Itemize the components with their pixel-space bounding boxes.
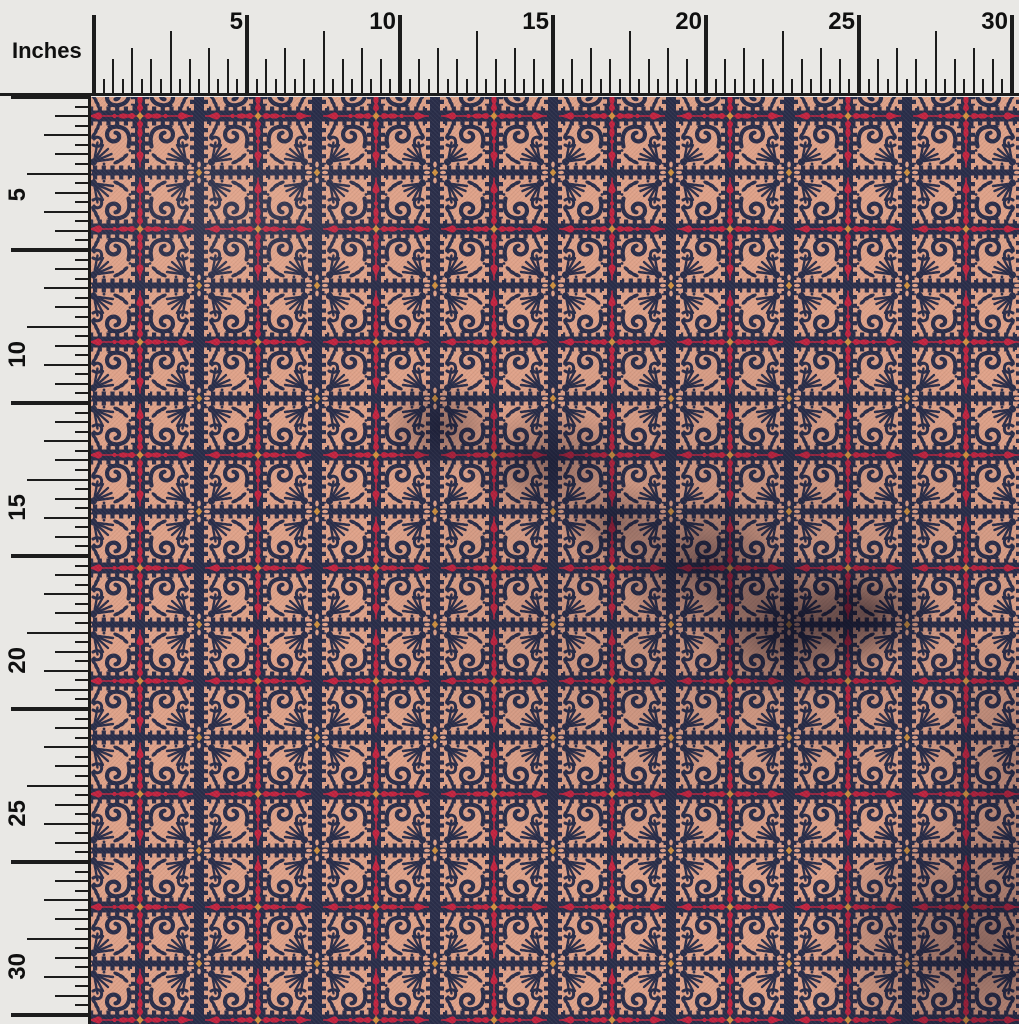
ruler-tick xyxy=(75,392,91,394)
ruler-tick xyxy=(857,15,861,95)
ruler-tick xyxy=(75,163,91,165)
ruler-tick xyxy=(294,79,296,95)
left-ruler-label-30: 30 xyxy=(5,953,31,1013)
ruler-tick xyxy=(27,173,91,175)
ruler-tick xyxy=(619,79,621,95)
ruler-tick xyxy=(75,526,91,528)
ruler-tick xyxy=(1010,15,1014,95)
ruler-tick xyxy=(122,79,124,95)
ruler-tick xyxy=(44,670,91,672)
top-ruler-label-20: 20 xyxy=(632,8,702,36)
ruler-tick xyxy=(44,440,91,442)
ruler-tick xyxy=(75,603,91,605)
ruler-tick xyxy=(791,79,793,95)
ruler-tick xyxy=(44,134,91,136)
ruler-tick xyxy=(380,59,382,95)
ruler-tick xyxy=(55,727,91,729)
ruler-tick xyxy=(973,48,975,95)
ruler-tick xyxy=(676,79,678,95)
ruler-tick xyxy=(75,259,91,261)
ruler-tick xyxy=(896,48,898,95)
ruler-tick xyxy=(44,899,91,901)
ruler-tick xyxy=(935,31,937,95)
ruler-tick xyxy=(657,79,659,95)
ruler-tick xyxy=(609,59,611,95)
ruler-tick xyxy=(820,48,822,95)
ruler-tick xyxy=(629,31,631,95)
fabric-pattern-svg xyxy=(91,97,1019,1024)
ruler-tick xyxy=(236,79,238,95)
ruler-tick xyxy=(245,15,249,95)
ruler-tick xyxy=(915,59,917,95)
ruler-tick xyxy=(75,890,91,892)
ruler-tick xyxy=(112,59,114,95)
ruler-tick xyxy=(44,364,91,366)
ruler-tick xyxy=(75,201,91,203)
ruler-tick xyxy=(75,756,91,758)
ruler-tick xyxy=(75,125,91,127)
ruler-tick xyxy=(27,479,91,481)
ruler-tick xyxy=(648,59,650,95)
ruler-tick xyxy=(667,48,669,95)
ruler-tick xyxy=(600,79,602,95)
ruler-tick xyxy=(75,220,91,222)
ruler-tick xyxy=(562,79,564,95)
ruler-tick xyxy=(75,182,91,184)
ruler-tick xyxy=(389,79,391,95)
ruler-tick xyxy=(75,507,91,509)
left-ruler-baseline xyxy=(88,93,91,1024)
ruler-tick xyxy=(55,498,91,500)
ruler-tick xyxy=(55,459,91,461)
ruler-tick xyxy=(686,59,688,95)
ruler-tick xyxy=(44,823,91,825)
ruler-tick xyxy=(753,79,755,95)
ruler-tick xyxy=(44,976,91,978)
ruler-tick xyxy=(55,765,91,767)
ruler-tick xyxy=(275,79,277,95)
ruler-tick xyxy=(75,947,91,949)
fabric-swatch xyxy=(91,97,1019,1024)
ruler-tick xyxy=(75,737,91,739)
ruler-tick xyxy=(1001,79,1003,95)
ruler-tick xyxy=(456,59,458,95)
ruler-tick xyxy=(55,230,91,232)
ruler-tick xyxy=(704,15,708,95)
ruler-tick xyxy=(418,59,420,95)
ruler-tick xyxy=(75,718,91,720)
ruler-tick xyxy=(75,469,91,471)
ruler-tick xyxy=(533,59,535,95)
ruler-tick xyxy=(11,707,91,711)
ruler-tick xyxy=(11,1013,91,1017)
ruler-tick xyxy=(44,517,91,519)
ruler-tick xyxy=(523,79,525,95)
ruler-tick xyxy=(495,59,497,95)
ruler-tick xyxy=(131,48,133,95)
ruler-tick xyxy=(75,335,91,337)
ruler-tick xyxy=(925,79,927,95)
ruler-tick xyxy=(27,938,91,940)
ruler-tick xyxy=(11,554,91,558)
ruler-tick xyxy=(55,995,91,997)
left-ruler-label-5: 5 xyxy=(5,188,31,248)
ruler-tick xyxy=(504,79,506,95)
ruler-tick xyxy=(55,804,91,806)
left-ruler-label-15: 15 xyxy=(5,494,31,554)
top-ruler-label-30: 30 xyxy=(938,8,1008,36)
ruler-tick xyxy=(75,622,91,624)
ruler-tick xyxy=(303,59,305,95)
ruler-tick xyxy=(217,79,219,95)
ruler-tick xyxy=(27,785,91,787)
ruler-tick xyxy=(75,239,91,241)
ruler-tick xyxy=(170,31,172,95)
ruler-tick xyxy=(351,79,353,95)
ruler-tick xyxy=(55,957,91,959)
ruler-tick xyxy=(75,354,91,356)
ruler-tick xyxy=(75,297,91,299)
ruler-tick xyxy=(44,746,91,748)
ruler-tick xyxy=(11,401,91,405)
ruler-tick xyxy=(75,278,91,280)
ruler-tick xyxy=(55,115,91,117)
ruler-tick xyxy=(55,306,91,308)
ruler-tick xyxy=(447,79,449,95)
ruler-tick xyxy=(801,59,803,95)
ruler-tick xyxy=(638,79,640,95)
ruler-tick xyxy=(571,59,573,95)
ruler-tick xyxy=(75,871,91,873)
ruler-tick xyxy=(762,59,764,95)
ruler-tick xyxy=(361,48,363,95)
ruler-tick xyxy=(55,842,91,844)
ruler-tick xyxy=(103,79,105,95)
ruler-tick xyxy=(11,248,91,252)
ruler-tick xyxy=(75,412,91,414)
left-ruler: 5 10 15 20 25 30 xyxy=(0,0,91,1024)
ruler-tick xyxy=(466,79,468,95)
ruler-tick xyxy=(55,192,91,194)
ruler-tick xyxy=(409,79,411,95)
ruler-tick xyxy=(75,106,91,108)
ruler-tick xyxy=(44,593,91,595)
ruler-tick xyxy=(44,211,91,213)
ruler-tick xyxy=(75,698,91,700)
ruler-tick xyxy=(476,31,478,95)
ruler-tick xyxy=(848,79,850,95)
ruler-tick xyxy=(428,79,430,95)
top-ruler: 5 10 15 20 25 30 xyxy=(0,0,1019,97)
ruler-tick xyxy=(992,59,994,95)
ruler-tick xyxy=(55,345,91,347)
ruler-tick xyxy=(75,641,91,643)
top-ruler-label-15: 15 xyxy=(479,8,549,36)
ruler-unit-label: Inches xyxy=(12,38,82,64)
left-ruler-label-25: 25 xyxy=(5,800,31,860)
ruler-tick xyxy=(323,31,325,95)
ruler-tick xyxy=(27,632,91,634)
ruler-tick xyxy=(198,79,200,95)
ruler-tick xyxy=(55,574,91,576)
ruler-tick xyxy=(55,918,91,920)
ruler-tick xyxy=(55,383,91,385)
ruler-tick xyxy=(829,79,831,95)
ruler-tick xyxy=(868,79,870,95)
left-ruler-label-20: 20 xyxy=(5,647,31,707)
ruler-tick xyxy=(954,59,956,95)
ruler-tick xyxy=(141,79,143,95)
ruler-tick xyxy=(551,15,555,95)
ruler-tick xyxy=(906,79,908,95)
ruler-tick xyxy=(370,79,372,95)
ruler-tick xyxy=(75,373,91,375)
ruler-tick xyxy=(11,95,91,99)
ruler-tick xyxy=(772,79,774,95)
ruler-tick xyxy=(590,48,592,95)
ruler-tick xyxy=(485,79,487,95)
ruler-tick xyxy=(256,79,258,95)
ruler-tick xyxy=(982,79,984,95)
ruler-tick xyxy=(75,832,91,834)
ruler-tick xyxy=(75,545,91,547)
ruler-tick xyxy=(150,59,152,95)
ruler-tick xyxy=(542,79,544,95)
ruler-tick xyxy=(55,651,91,653)
ruler-tick xyxy=(75,775,91,777)
ruler-tick xyxy=(75,488,91,490)
ruler-tick xyxy=(55,421,91,423)
ruler-tick xyxy=(189,59,191,95)
ruler-tick xyxy=(27,326,91,328)
top-ruler-baseline xyxy=(0,93,1019,96)
ruler-tick xyxy=(398,15,402,95)
ruler-tick xyxy=(75,660,91,662)
top-ruler-label-10: 10 xyxy=(326,8,396,36)
ruler-tick xyxy=(75,985,91,987)
ruler-tick xyxy=(581,79,583,95)
ruler-tick xyxy=(11,860,91,864)
ruler-tick xyxy=(55,153,91,155)
ruler-tick xyxy=(55,689,91,691)
ruler-tick xyxy=(342,59,344,95)
ruler-tick xyxy=(75,431,91,433)
ruler-tick xyxy=(179,79,181,95)
ruler-tick xyxy=(514,48,516,95)
left-ruler-label-10: 10 xyxy=(5,341,31,401)
ruler-tick xyxy=(332,79,334,95)
ruler-tick xyxy=(75,450,91,452)
ruler-tick xyxy=(944,79,946,95)
ruler-tick xyxy=(227,59,229,95)
ruler-tick xyxy=(284,48,286,95)
ruler-tick xyxy=(75,909,91,911)
ruler-tick xyxy=(208,48,210,95)
ruler-tick xyxy=(55,880,91,882)
fabric-swatch-photo: 5 10 15 20 25 30 5 10 15 20 25 30 Inches xyxy=(0,0,1019,1024)
ruler-tick xyxy=(75,679,91,681)
ruler-tick xyxy=(75,565,91,567)
ruler-tick xyxy=(75,813,91,815)
ruler-tick xyxy=(75,928,91,930)
ruler-tick xyxy=(887,79,889,95)
ruler-tick xyxy=(715,79,717,95)
ruler-tick xyxy=(75,584,91,586)
ruler-tick xyxy=(782,31,784,95)
ruler-tick xyxy=(877,59,879,95)
ruler-tick xyxy=(160,79,162,95)
ruler-tick xyxy=(810,79,812,95)
ruler-tick xyxy=(75,144,91,146)
ruler-tick xyxy=(75,1004,91,1006)
ruler-tick xyxy=(92,15,96,95)
ruler-tick xyxy=(75,316,91,318)
ruler-tick xyxy=(963,79,965,95)
top-ruler-label-25: 25 xyxy=(785,8,855,36)
ruler-tick xyxy=(695,79,697,95)
ruler-tick xyxy=(743,48,745,95)
ruler-tick xyxy=(55,536,91,538)
ruler-tick xyxy=(75,966,91,968)
ruler-tick xyxy=(75,794,91,796)
ruler-tick xyxy=(734,79,736,95)
ruler-tick xyxy=(265,59,267,95)
ruler-tick xyxy=(55,612,91,614)
ruler-tick xyxy=(313,79,315,95)
ruler-tick xyxy=(839,59,841,95)
top-ruler-label-5: 5 xyxy=(173,8,243,36)
ruler-tick xyxy=(437,48,439,95)
ruler-tick xyxy=(44,287,91,289)
ruler-tick xyxy=(55,268,91,270)
ruler-tick xyxy=(724,59,726,95)
ruler-tick xyxy=(75,851,91,853)
